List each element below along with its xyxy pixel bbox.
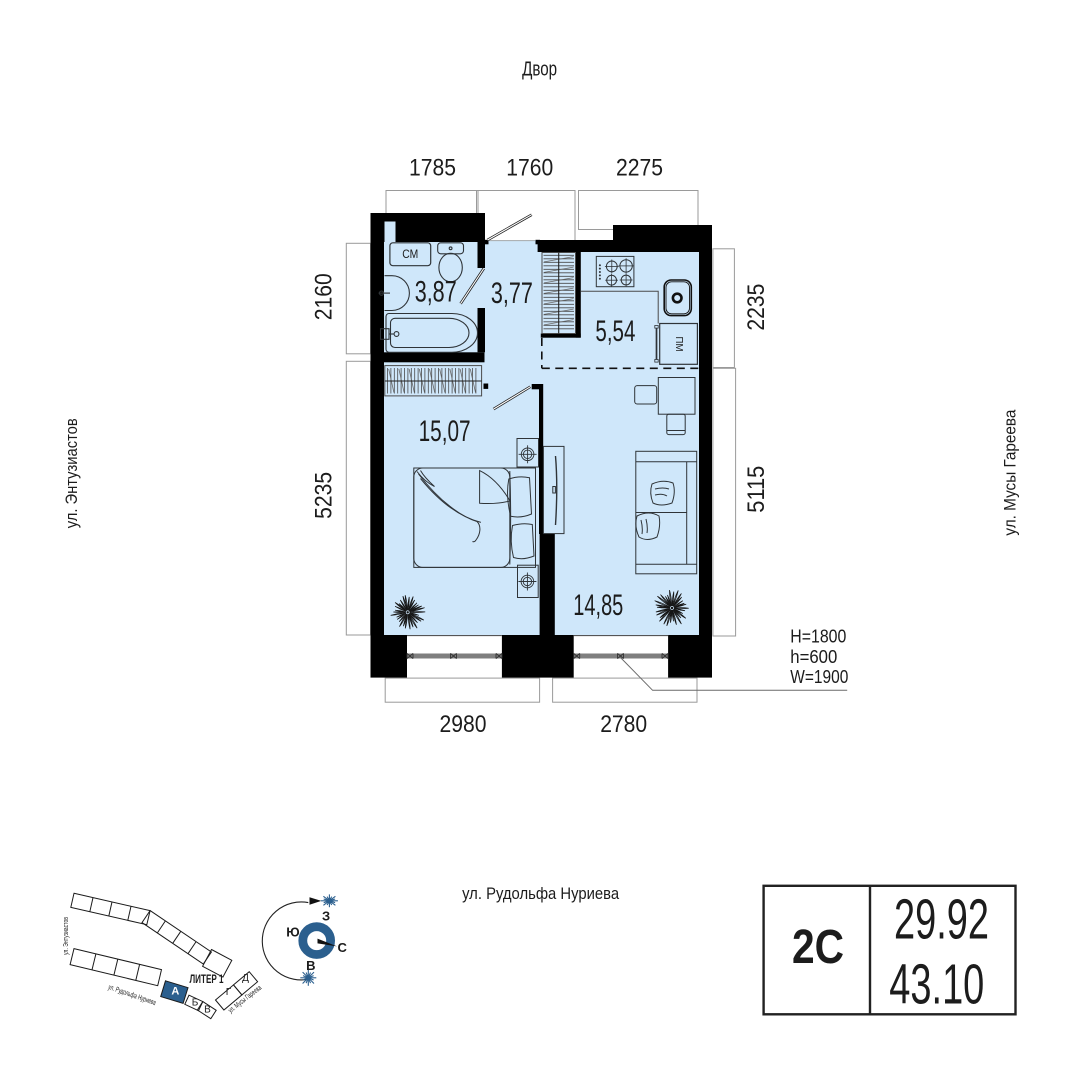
- svg-text:ул. Энтузиастов: ул. Энтузиастов: [63, 917, 70, 955]
- svg-text:Г: Г: [226, 987, 232, 998]
- svg-text:29.92: 29.92: [894, 888, 989, 952]
- svg-text:ул. Мусы Гареева: ул. Мусы Гареева: [1001, 409, 1020, 535]
- svg-text:Ю: Ю: [286, 925, 299, 940]
- svg-text:ПМ: ПМ: [673, 337, 684, 352]
- svg-text:2С: 2С: [792, 921, 844, 974]
- svg-text:З: З: [322, 909, 330, 924]
- svg-text:3,87: 3,87: [415, 275, 457, 308]
- svg-text:3,77: 3,77: [491, 277, 533, 310]
- svg-text:1785: 1785: [409, 154, 456, 181]
- svg-text:ул. Рудольфа Нуриева: ул. Рудольфа Нуриева: [462, 884, 619, 903]
- svg-text:5,54: 5,54: [595, 315, 635, 348]
- svg-text:2780: 2780: [600, 711, 647, 738]
- svg-text:2980: 2980: [440, 711, 487, 738]
- svg-text:ЛИТЕР 1: ЛИТЕР 1: [190, 974, 224, 986]
- svg-text:14,85: 14,85: [573, 589, 623, 622]
- svg-text:С: С: [338, 940, 348, 955]
- svg-text:СМ: СМ: [402, 249, 418, 261]
- svg-text:В: В: [306, 958, 315, 973]
- svg-text:h=600: h=600: [790, 647, 837, 667]
- svg-text:5115: 5115: [743, 466, 770, 513]
- svg-text:2275: 2275: [616, 154, 663, 181]
- svg-text:Двор: Двор: [522, 59, 557, 81]
- svg-text:15,07: 15,07: [419, 415, 471, 448]
- svg-text:H=1800: H=1800: [790, 627, 846, 647]
- svg-text:В: В: [204, 1004, 211, 1015]
- svg-text:2160: 2160: [311, 273, 338, 320]
- svg-text:2235: 2235: [743, 284, 770, 331]
- svg-text:А: А: [171, 986, 179, 998]
- svg-text:W=1900: W=1900: [790, 667, 848, 687]
- svg-text:43.10: 43.10: [889, 953, 984, 1017]
- svg-text:1760: 1760: [506, 154, 553, 181]
- svg-text:Д: Д: [242, 973, 249, 984]
- svg-text:5235: 5235: [311, 472, 338, 519]
- svg-text:Б: Б: [192, 998, 199, 1009]
- svg-text:ул. Энтузиастов: ул. Энтузиастов: [62, 418, 81, 528]
